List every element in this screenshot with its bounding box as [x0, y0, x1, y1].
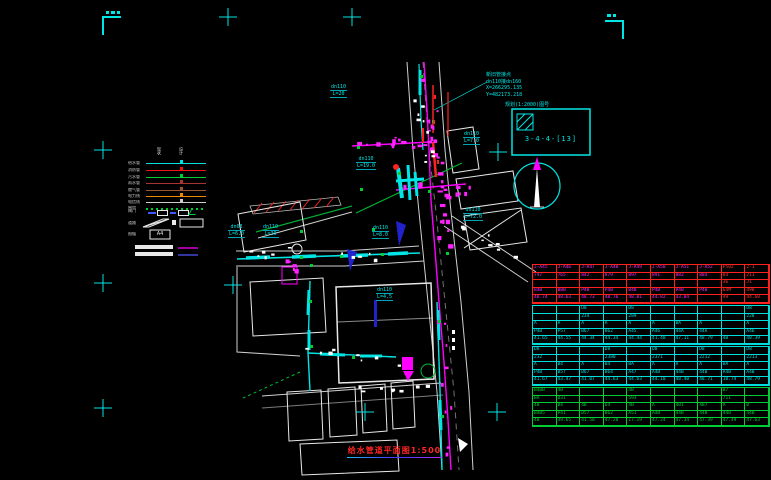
- legend-valve-box: [157, 210, 168, 216]
- table-cell: [651, 314, 675, 322]
- pipe-label: dn63L=6.0: [228, 224, 245, 238]
- table-cell: J-A50: [651, 265, 675, 273]
- table-row: 74776584287989789188288484211: [533, 273, 769, 281]
- node-marker: [398, 172, 401, 175]
- table-cell: 4B: [533, 403, 557, 411]
- table-cell: 48.79: [698, 336, 722, 344]
- table-cell: D8: [627, 306, 651, 314]
- cad-text-clutter: [401, 141, 406, 144]
- table-row: 41.6743.4741.0744.6344.6344.1048.4048.71…: [533, 377, 769, 385]
- table-cell: P4B: [651, 288, 675, 296]
- table-cell: 48.79: [745, 377, 769, 385]
- table-cell: [580, 388, 604, 396]
- table-cell: B4B5: [533, 411, 557, 419]
- table-cell: 842: [580, 273, 604, 281]
- table-cell: D8: [533, 347, 557, 355]
- table-cell: B57: [580, 411, 604, 419]
- cad-text-clutter: [380, 387, 383, 390]
- table-cell: J-A51: [675, 265, 699, 273]
- registration-cross: [356, 403, 374, 421]
- table-cell: 36: [722, 280, 746, 288]
- table-cell: A: [722, 403, 746, 411]
- table-row: 2322380237122122213: [533, 355, 769, 363]
- cad-text-clutter: [356, 354, 359, 356]
- cad-text-clutter: [305, 348, 309, 350]
- registration-cross: [94, 399, 112, 417]
- registration-cross: [343, 8, 361, 26]
- table-cell: 4B: [627, 388, 651, 396]
- table-cell: [698, 396, 722, 404]
- table-cell: 48.81: [627, 295, 651, 303]
- table-cell: D4: [604, 403, 628, 411]
- cad-text-clutter: [446, 196, 451, 199]
- cad-text-clutter: [361, 391, 366, 393]
- cad-text-clutter: [361, 360, 363, 362]
- table-row: B4B5P41B57B62A51A4B44B44B44B44B: [533, 411, 769, 419]
- cad-text-clutter: [395, 137, 397, 139]
- cad-text-clutter: [445, 411, 447, 414]
- table-cell: [580, 347, 604, 355]
- cad-text-clutter: [418, 185, 422, 189]
- table-cell: [604, 306, 628, 314]
- table-cell: [557, 347, 581, 355]
- table-cell: 4B: [533, 418, 557, 426]
- table-cell: [557, 306, 581, 314]
- sheet-corner-marks: [103, 11, 623, 39]
- cad-text-clutter: [442, 220, 444, 225]
- cad-text-clutter: [450, 406, 452, 410]
- table-cell: [722, 329, 746, 337]
- node-marker: [441, 415, 444, 418]
- table-cell: [722, 306, 746, 314]
- cad-text-clutter: [271, 254, 274, 256]
- cad-viewport[interactable]: dn110L=20 dn110L=7.0 dn110L=72.0 dn63L=6…: [0, 0, 771, 480]
- table-cell: BA: [533, 396, 557, 404]
- cad-text-clutter: [431, 125, 433, 129]
- legend-item-label: 污水管: [128, 175, 146, 179]
- cad-text-clutter: [332, 349, 335, 351]
- cad-text-clutter: [357, 142, 362, 146]
- cad-text-clutter: [369, 253, 371, 256]
- table-cell: [604, 314, 628, 322]
- table-cell: 4B: [627, 403, 651, 411]
- table-cell: 44.60: [745, 295, 769, 303]
- legend-line-sample: [146, 190, 206, 191]
- pipe-label: dn110L=8.0: [372, 225, 389, 239]
- cad-text-clutter: [424, 161, 427, 163]
- legend-item-label: 给水管: [128, 161, 146, 165]
- table-cell: [675, 388, 699, 396]
- cad-text-clutter: [444, 323, 446, 325]
- table-cell: BA: [675, 321, 699, 329]
- cad-text-clutter: [418, 145, 423, 148]
- table-section: B4BB4B4BB7BAD315937114BB44BD44BA4B14B7AB…: [532, 387, 770, 427]
- table-section: D8D8D8234289228AAAAAABAAAP4BP57B67B62A45…: [532, 305, 770, 345]
- legend-fitting-marker: [180, 199, 183, 202]
- table-cell: [722, 355, 746, 363]
- pipe-label: dn110L=19.0: [356, 156, 376, 170]
- table-cell: D8: [604, 347, 628, 355]
- cad-text-clutter: [376, 142, 380, 146]
- node-marker: [340, 255, 343, 258]
- legend-line-sample: [146, 196, 206, 197]
- table-cell: 41.67: [533, 377, 557, 385]
- table-cell: 41.07: [580, 377, 604, 385]
- table-cell: J-A46: [557, 265, 581, 273]
- cad-text-clutter: [418, 113, 420, 116]
- table-cell: 44B: [698, 370, 722, 378]
- table-cell: A: [651, 321, 675, 329]
- cad-text-clutter: [428, 141, 433, 144]
- table-cell: A: [533, 321, 557, 329]
- table-cell: P502: [722, 265, 746, 273]
- table-cell: P4B: [533, 370, 557, 378]
- legend-item-label: 电信线: [128, 200, 146, 204]
- registration-cross: [94, 274, 112, 292]
- table-cell: 48.74: [533, 295, 557, 303]
- cad-text-clutter: [458, 192, 461, 195]
- cad-text-clutter: [265, 256, 267, 259]
- table-cell: [627, 347, 651, 355]
- table-cell: 47.49: [722, 418, 746, 426]
- registration-cross: [488, 403, 506, 421]
- table-cell: P4B: [580, 288, 604, 296]
- cad-text-clutter: [441, 162, 445, 165]
- table-cell: 747: [533, 273, 557, 281]
- table-cell: [557, 280, 581, 288]
- table-cell: A: [580, 321, 604, 329]
- cad-text-clutter: [446, 220, 450, 225]
- table-cell: 44.63: [627, 377, 651, 385]
- cad-text-clutter: [352, 256, 356, 259]
- junction-note-y: Y=482173.218: [486, 92, 522, 99]
- table-cell: J-A47: [580, 265, 604, 273]
- table-row: 36J1: [533, 280, 769, 288]
- table-cell: [675, 280, 699, 288]
- table-cell: [722, 314, 746, 322]
- cad-text-clutter: [437, 157, 440, 159]
- drawing-title: 给水管道平面图1:500: [347, 445, 442, 456]
- table-cell: [722, 347, 746, 355]
- table-cell: [722, 321, 746, 329]
- cad-text-clutter: [286, 259, 290, 263]
- cad-text-clutter: [430, 137, 433, 141]
- table-cell: P57: [557, 329, 581, 337]
- cad-text-clutter: [446, 453, 449, 457]
- cad-text-clutter: [320, 352, 322, 354]
- table-row: 234289228: [533, 314, 769, 322]
- table-cell: [651, 396, 675, 404]
- legend-fitting-marker: [180, 187, 183, 190]
- table-cell: 41.65: [533, 336, 557, 344]
- cad-text-clutter: [374, 259, 378, 262]
- node-marker: [310, 345, 313, 348]
- table-row: B4BB8BP4BP4BB4BP4BP4BP4B64M49B: [533, 288, 769, 296]
- table-cell: [651, 388, 675, 396]
- table-cell: 44B: [675, 370, 699, 378]
- table-cell: [698, 306, 722, 314]
- table-cell: A: [698, 362, 722, 370]
- legend-item-label: 燃气管: [128, 188, 146, 192]
- table-cell: A: [745, 321, 769, 329]
- table-cell: A: [604, 321, 628, 329]
- table-cell: 897: [627, 273, 651, 281]
- table-cell: 232: [533, 355, 557, 363]
- cad-text-clutter: [433, 139, 437, 143]
- table-cell: 44.63: [604, 377, 628, 385]
- table-cell: J-A48: [604, 265, 628, 273]
- table-cell: [580, 355, 604, 363]
- table-cell: 2371: [651, 355, 675, 363]
- table-cell: 17.19: [627, 418, 651, 426]
- table-row: D8D8D8D8D8: [533, 347, 769, 355]
- legend-line-sample: [146, 170, 206, 171]
- table-cell: BA: [627, 362, 651, 370]
- table-cell: A: [675, 362, 699, 370]
- table-cell: 44.44: [627, 336, 651, 344]
- table-cell: 47.34: [675, 418, 699, 426]
- table-cell: 84: [722, 273, 746, 281]
- table-cell: [651, 306, 675, 314]
- table-cell: A46: [651, 329, 675, 337]
- table-cell: 765: [557, 273, 581, 281]
- table-cell: [604, 388, 628, 396]
- node-marker: [438, 320, 441, 323]
- cad-text-clutter: [447, 446, 450, 449]
- node-marker: [300, 230, 303, 233]
- pipe-label: dn110L=30: [262, 224, 279, 238]
- table-cell: 4B1: [675, 403, 699, 411]
- table-cell: 4B: [557, 388, 581, 396]
- cad-text-clutter: [456, 186, 460, 189]
- table-cell: 44.34: [580, 336, 604, 344]
- table-cell: B57: [557, 370, 581, 378]
- table-cell: [745, 388, 769, 396]
- legend-header-design: 设计: [179, 147, 183, 155]
- table-cell: 44.10: [651, 377, 675, 385]
- table-row: AB4AB4BAAAABAA: [533, 362, 769, 370]
- table-cell: J1: [745, 280, 769, 288]
- cad-text-clutter: [375, 356, 379, 359]
- legend-item-label: 阀门: [128, 209, 146, 213]
- table-cell: A: [627, 321, 651, 329]
- legend-label-frame: 图幅: [128, 232, 146, 236]
- table-cell: 47.24: [651, 418, 675, 426]
- cad-text-clutter: [398, 139, 401, 142]
- table-cell: 44B: [745, 411, 769, 419]
- table-cell: 44.82: [651, 295, 675, 303]
- table-cell: B4: [557, 403, 581, 411]
- registration-cross: [94, 141, 112, 159]
- buildings: [238, 127, 527, 475]
- legend-line-sample: [146, 177, 206, 178]
- table-cell: [557, 314, 581, 322]
- table-cell: A45: [627, 329, 651, 337]
- table-cell: [698, 280, 722, 288]
- cad-text-clutter: [392, 389, 394, 392]
- table-cell: D8: [580, 306, 604, 314]
- table-cell: 2213: [745, 355, 769, 363]
- cad-text-clutter: [438, 172, 443, 175]
- table-cell: 711: [722, 396, 746, 404]
- table-cell: 18.74: [722, 377, 746, 385]
- table-row: 4B49.6541.5847.2817.1947.2447.3447.3947.…: [533, 418, 769, 426]
- table-cell: 289: [627, 314, 651, 322]
- table-cell: P4B: [604, 288, 628, 296]
- table-cell: P4B: [698, 288, 722, 296]
- legend-item-label: 消防管: [128, 168, 146, 172]
- table-cell: 48.63: [557, 295, 581, 303]
- table-cell: [533, 280, 557, 288]
- cad-text-clutter: [434, 95, 436, 99]
- table-row: AAAAAABAAA: [533, 321, 769, 329]
- table-cell: A: [580, 362, 604, 370]
- cad-text-clutter: [249, 251, 253, 253]
- cad-text-clutter: [403, 185, 406, 189]
- legend-a4-text: A4: [150, 231, 170, 237]
- cad-text-clutter: [429, 119, 431, 123]
- table-cell: A: [533, 362, 557, 370]
- table-cell: 44A: [698, 329, 722, 337]
- cad-text-clutter: [441, 383, 444, 387]
- table-cell: 47.39: [698, 418, 722, 426]
- table-cell: [675, 306, 699, 314]
- table-cell: A4B: [722, 370, 746, 378]
- table-cell: 234: [580, 314, 604, 322]
- table-cell: A: [745, 362, 769, 370]
- table-cell: [604, 396, 628, 404]
- cad-text-clutter: [399, 390, 403, 393]
- table-cell: B4: [557, 362, 581, 370]
- table-cell: A4B: [651, 370, 675, 378]
- table-cell: 2-1: [745, 265, 769, 273]
- node-table: J-A45J-A46J-A47J-A48J-A49J-A50J-A51J-A52…: [532, 264, 770, 420]
- table-cell: [557, 355, 581, 363]
- table-cell: B4B: [627, 288, 651, 296]
- table-cell: 44.55: [557, 336, 581, 344]
- cad-text-clutter: [262, 251, 266, 254]
- table-cell: D31: [557, 396, 581, 404]
- legend-fitting-marker: [180, 160, 183, 163]
- cad-text-clutter: [445, 367, 449, 369]
- cad-text-clutter: [488, 234, 490, 236]
- table-cell: B4: [604, 362, 628, 370]
- table-cell: [580, 396, 604, 404]
- legend-valve-box: [178, 210, 189, 216]
- table-cell: A51: [627, 411, 651, 419]
- legend-fitting-marker: [180, 167, 183, 170]
- legend-fitting-marker: [180, 174, 183, 177]
- cad-text-clutter: [443, 213, 447, 216]
- table-cell: [627, 280, 651, 288]
- junction-note: 新旧管接点 dn110接dn160 X=266295.135 Y=482173.…: [486, 72, 522, 98]
- cad-text-clutter: [437, 160, 439, 164]
- cad-text-clutter: [392, 142, 395, 146]
- cad-text-clutter: [421, 105, 425, 108]
- table-cell: A4B: [651, 411, 675, 419]
- table-cell: B: [745, 403, 769, 411]
- table-cell: 48.76: [604, 295, 628, 303]
- table-row: 41.6544.5544.3444.3444.4441.4847.1148.79…: [533, 336, 769, 344]
- table-cell: P4B: [533, 329, 557, 337]
- table-cell: [675, 347, 699, 355]
- table-cell: [698, 314, 722, 322]
- table-cell: 4B: [722, 336, 746, 344]
- table-cell: 228: [745, 314, 769, 322]
- table-cell: D8: [745, 347, 769, 355]
- cad-text-clutter: [398, 365, 401, 367]
- table-cell: D8: [745, 306, 769, 314]
- registration-cross: [489, 143, 507, 161]
- legend-valve-dash: [170, 212, 176, 214]
- pipe-label: dn110L=20: [330, 84, 347, 98]
- table-cell: [675, 355, 699, 363]
- table-cell: 49: [722, 295, 746, 303]
- table-cell: [745, 396, 769, 404]
- table-cell: 48.71: [698, 377, 722, 385]
- table-cell: [533, 314, 557, 322]
- cad-text-clutter: [417, 119, 422, 122]
- table-cell: [675, 314, 699, 322]
- table-cell: D8: [651, 347, 675, 355]
- table-cell: 891: [651, 273, 675, 281]
- table-cell: 2212: [698, 355, 722, 363]
- cad-text-clutter: [437, 236, 441, 240]
- table-cell: 4B: [580, 403, 604, 411]
- table-cell: A: [651, 362, 675, 370]
- cad-text-clutter: [293, 268, 295, 271]
- table-cell: 41.58: [580, 418, 604, 426]
- cad-text-clutter: [358, 256, 362, 258]
- table-cell: 44B: [722, 411, 746, 419]
- cad-text-clutter: [416, 385, 420, 388]
- table-cell: B67: [580, 329, 604, 337]
- table-cell: 47.28: [604, 418, 628, 426]
- table-cell: 4B7: [698, 403, 722, 411]
- cad-text-clutter: [496, 243, 500, 245]
- table-cell: A: [651, 403, 675, 411]
- legend-header-existing: 现状: [157, 147, 161, 155]
- legend-item-label: 电力线: [128, 194, 146, 198]
- cad-text-clutter: [461, 226, 465, 229]
- table-cell: 211: [745, 273, 769, 281]
- table-cell: 47.11: [675, 336, 699, 344]
- table-row: D8D8D8: [533, 306, 769, 314]
- cad-text-clutter: [469, 186, 471, 190]
- node-marker: [420, 75, 423, 78]
- cad-text-clutter: [426, 131, 429, 134]
- table-cell: B62: [604, 411, 628, 419]
- cad-text-clutter: [438, 191, 443, 193]
- cad-text-clutter: [514, 256, 518, 259]
- table-cell: J-A45: [533, 265, 557, 273]
- table-row: B4BB4B4BB7: [533, 388, 769, 396]
- table-cell: [627, 355, 651, 363]
- node-marker: [428, 190, 431, 193]
- legend-label-road: 道路: [128, 221, 146, 225]
- table-row: BAD31593711: [533, 396, 769, 404]
- node-marker: [446, 252, 449, 255]
- table-row: 4BB44BD44BA4B14B7AB: [533, 403, 769, 411]
- table-cell: [675, 396, 699, 404]
- cad-text-clutter: [366, 144, 368, 146]
- cad-text-clutter: [441, 180, 443, 183]
- cad-text-clutter: [423, 144, 427, 146]
- cad-text-clutter: [413, 99, 416, 102]
- cad-text-clutter: [432, 155, 436, 157]
- table-cell: [698, 388, 722, 396]
- table-cell: B64: [604, 370, 628, 378]
